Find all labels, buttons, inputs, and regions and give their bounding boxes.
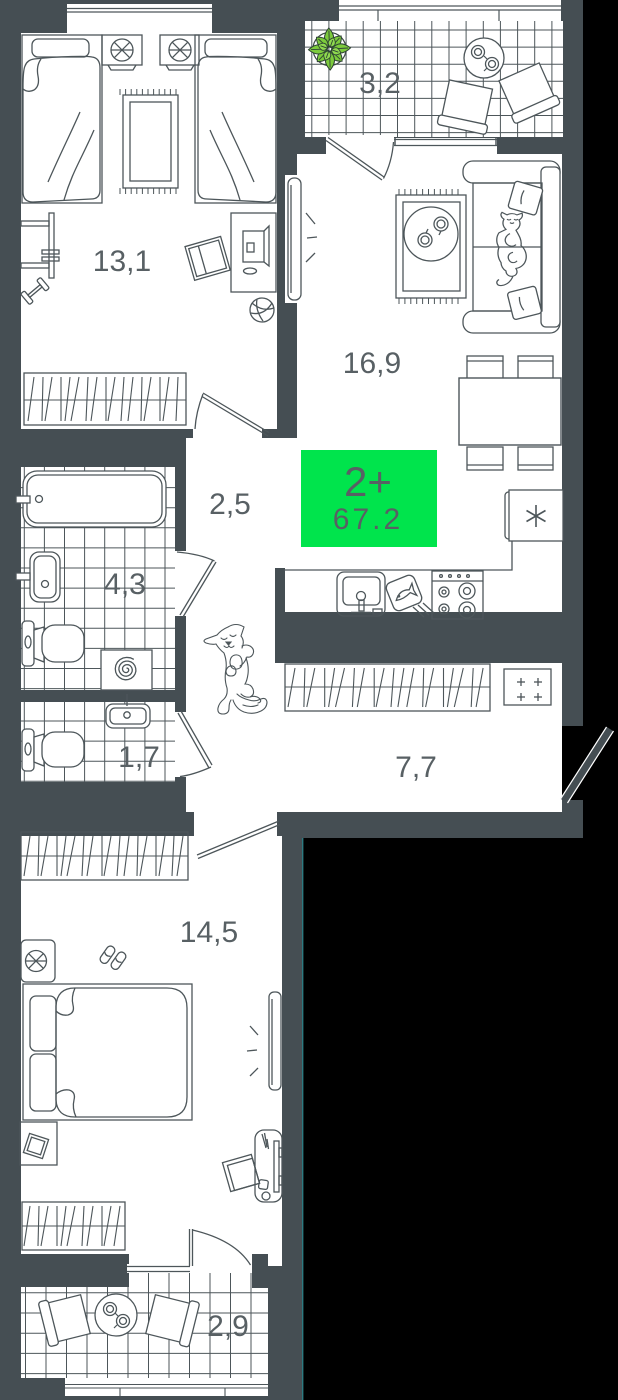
svg-text:7,7: 7,7 <box>395 751 437 784</box>
svg-text:67.2: 67.2 <box>333 503 403 536</box>
svg-text:16,9: 16,9 <box>343 347 401 380</box>
svg-text:14,5: 14,5 <box>180 916 238 949</box>
svg-text:2,9: 2,9 <box>207 1310 249 1343</box>
svg-text:2,5: 2,5 <box>209 488 251 521</box>
svg-text:2+: 2+ <box>344 458 392 505</box>
svg-text:3,2: 3,2 <box>359 67 401 100</box>
svg-text:13,1: 13,1 <box>93 245 151 278</box>
svg-text:1,7: 1,7 <box>118 741 160 774</box>
svg-text:4,3: 4,3 <box>104 568 146 601</box>
